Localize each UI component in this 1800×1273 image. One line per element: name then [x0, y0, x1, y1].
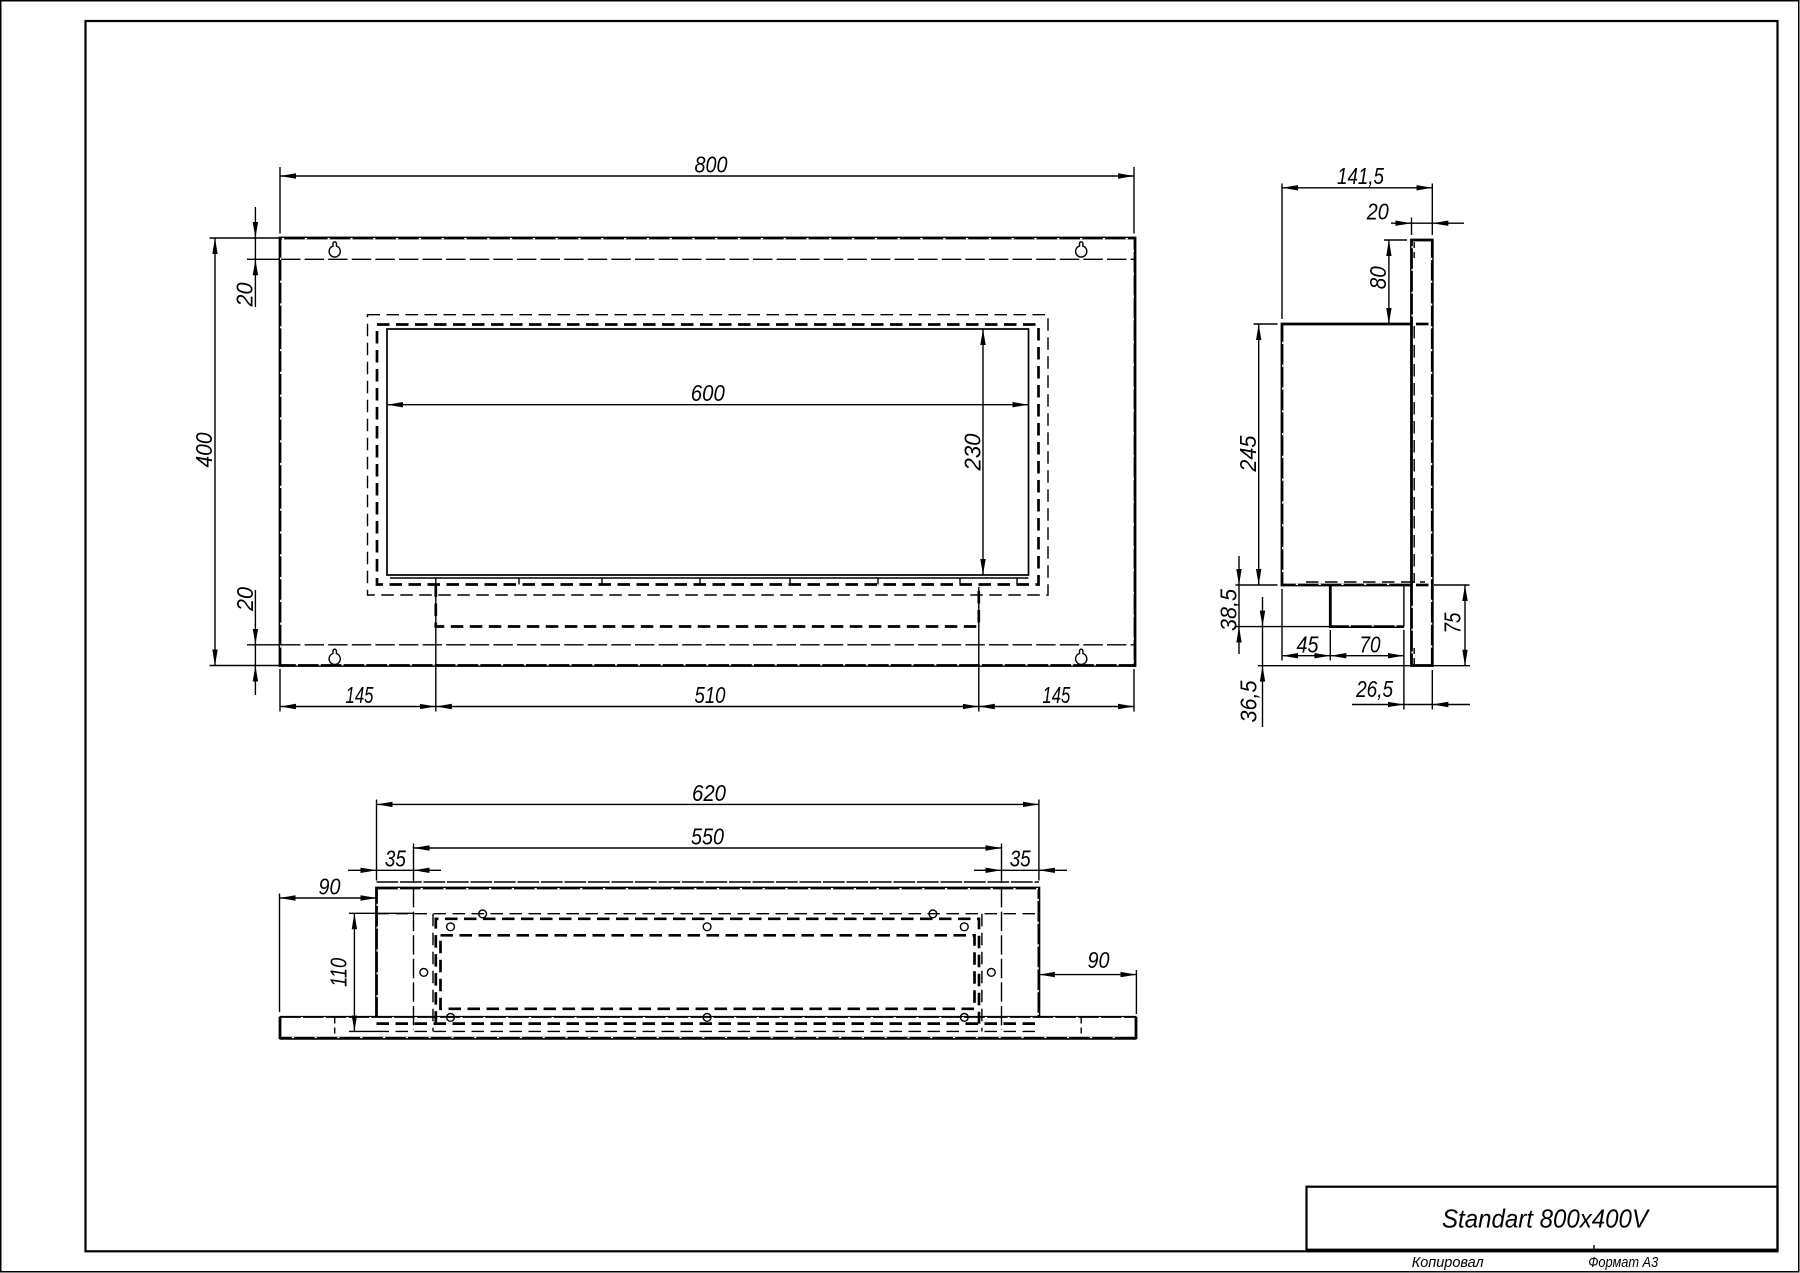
svg-text:80: 80: [1365, 266, 1391, 289]
svg-text:400: 400: [191, 432, 217, 467]
svg-text:245: 245: [1235, 435, 1261, 472]
svg-text:550: 550: [691, 823, 724, 849]
svg-text:141,5: 141,5: [1337, 163, 1384, 189]
svg-text:145: 145: [1042, 682, 1070, 708]
svg-text:90: 90: [1088, 947, 1110, 973]
svg-text:20: 20: [1366, 199, 1389, 225]
svg-text:75: 75: [1440, 612, 1466, 633]
svg-text:35: 35: [385, 846, 406, 872]
svg-text:110: 110: [326, 958, 352, 987]
svg-text:Формат А3: Формат А3: [1588, 1254, 1659, 1271]
svg-text:600: 600: [691, 380, 725, 406]
svg-text:620: 620: [692, 780, 726, 806]
svg-text:26,5: 26,5: [1355, 676, 1393, 702]
svg-text:510: 510: [695, 682, 726, 708]
svg-text:800: 800: [695, 151, 728, 177]
svg-text:145: 145: [346, 682, 374, 708]
svg-text:Копировал: Копировал: [1412, 1254, 1485, 1271]
svg-text:45: 45: [1297, 631, 1319, 657]
svg-text:38,5: 38,5: [1216, 589, 1242, 631]
svg-text:36,5: 36,5: [1236, 680, 1262, 722]
svg-text:Standart 800x400V: Standart 800x400V: [1442, 1204, 1650, 1234]
svg-text:70: 70: [1360, 631, 1381, 657]
svg-text:230: 230: [960, 433, 986, 471]
svg-text:20: 20: [232, 282, 258, 307]
svg-text:35: 35: [1010, 846, 1031, 872]
svg-text:20: 20: [232, 587, 258, 612]
svg-text:90: 90: [319, 873, 341, 899]
